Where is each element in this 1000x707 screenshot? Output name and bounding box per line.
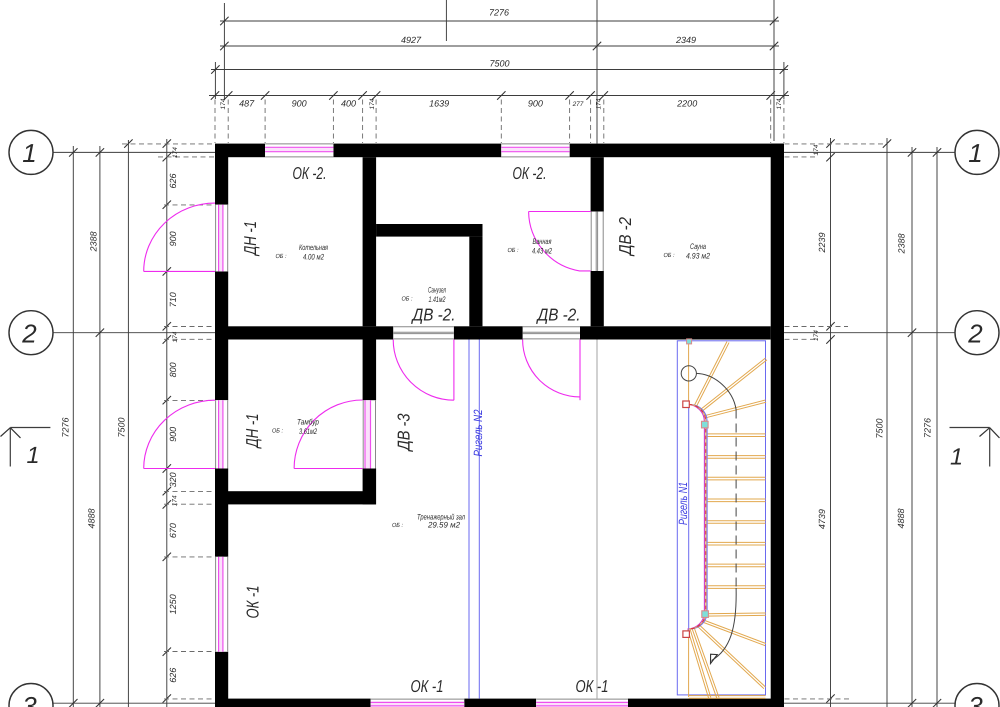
svg-text:ОК -1: ОК -1	[411, 676, 444, 696]
svg-text:ОБ :: ОБ :	[508, 247, 519, 254]
svg-text:174: 174	[172, 331, 179, 342]
svg-text:400: 400	[341, 99, 356, 109]
svg-text:174: 174	[369, 98, 376, 109]
svg-text:3.61м2: 3.61м2	[299, 427, 317, 436]
svg-text:320: 320	[168, 472, 178, 487]
svg-text:ОК -1: ОК -1	[243, 586, 263, 619]
svg-text:174: 174	[220, 98, 227, 109]
svg-text:7276: 7276	[61, 417, 71, 437]
svg-text:ОК -2.: ОК -2.	[293, 163, 327, 183]
svg-text:Тамбур: Тамбур	[297, 417, 319, 426]
svg-text:Санузел: Санузел	[428, 285, 446, 294]
svg-text:174: 174	[813, 144, 820, 155]
svg-text:3: 3	[22, 691, 37, 707]
svg-text:2: 2	[21, 318, 37, 348]
svg-text:487: 487	[239, 99, 255, 109]
svg-text:2239: 2239	[817, 232, 827, 253]
svg-text:4888: 4888	[87, 508, 97, 528]
svg-text:7276: 7276	[923, 418, 933, 438]
svg-text:1: 1	[950, 444, 963, 470]
svg-text:7276: 7276	[489, 8, 509, 18]
svg-text:Ригель N1: Ригель N1	[676, 482, 690, 525]
svg-text:174: 174	[172, 147, 179, 158]
svg-text:ОБ :: ОБ :	[664, 252, 675, 259]
svg-text:4.93 м2: 4.93 м2	[686, 251, 710, 260]
svg-text:1: 1	[968, 138, 982, 168]
svg-text:4888: 4888	[896, 508, 906, 528]
svg-text:2: 2	[967, 318, 983, 348]
svg-text:174: 174	[172, 495, 179, 506]
svg-text:ОБ :: ОБ :	[272, 427, 283, 434]
svg-text:626: 626	[168, 173, 178, 188]
svg-text:Сауна: Сауна	[690, 242, 706, 251]
svg-text:ДВ -2: ДВ -2	[615, 217, 635, 257]
svg-text:900: 900	[528, 99, 543, 109]
svg-text:ОБ :: ОБ :	[392, 522, 403, 529]
svg-text:Ригель N2: Ригель N2	[471, 409, 485, 456]
svg-text:3: 3	[968, 691, 983, 707]
svg-text:1: 1	[26, 442, 39, 468]
svg-text:4.43 м2: 4.43 м2	[532, 246, 552, 255]
svg-text:1639: 1639	[429, 99, 449, 109]
svg-text:ДВ -2.: ДВ -2.	[536, 304, 581, 324]
svg-text:4739: 4739	[817, 509, 827, 529]
svg-text:1.41м2: 1.41м2	[429, 295, 446, 304]
svg-text:ОБ :: ОБ :	[402, 295, 413, 302]
svg-text:ОК -1: ОК -1	[576, 676, 609, 696]
svg-text:626: 626	[168, 668, 178, 683]
svg-text:174: 174	[776, 98, 783, 109]
svg-text:Котельная: Котельная	[299, 243, 329, 252]
svg-text:1: 1	[22, 138, 36, 168]
svg-text:4927: 4927	[401, 35, 422, 45]
svg-text:2388: 2388	[89, 231, 99, 252]
svg-text:670: 670	[168, 523, 178, 538]
svg-text:277: 277	[572, 101, 584, 108]
svg-text:710: 710	[168, 292, 178, 307]
svg-text:7500: 7500	[117, 417, 127, 437]
svg-text:ОК -2.: ОК -2.	[513, 163, 547, 183]
svg-text:174: 174	[813, 330, 820, 341]
svg-text:900: 900	[168, 427, 178, 442]
svg-text:800: 800	[168, 362, 178, 377]
svg-text:900: 900	[168, 231, 178, 246]
svg-text:ОБ :: ОБ :	[276, 253, 287, 260]
svg-text:2200: 2200	[676, 99, 697, 109]
svg-text:ДВ -3: ДВ -3	[394, 413, 414, 452]
svg-text:1250: 1250	[168, 594, 178, 614]
svg-text:Ванная: Ванная	[533, 237, 553, 246]
svg-text:2349: 2349	[675, 35, 696, 45]
svg-text:900: 900	[292, 99, 307, 109]
svg-text:ДВ -2.: ДВ -2.	[411, 304, 456, 324]
svg-text:7500: 7500	[875, 418, 885, 438]
svg-text:ДН -1: ДН -1	[240, 221, 260, 257]
svg-text:29.59 м2: 29.59 м2	[427, 520, 461, 529]
svg-text:ДН -1: ДН -1	[242, 414, 262, 450]
svg-text:2388: 2388	[897, 233, 907, 254]
svg-text:174: 174	[596, 98, 603, 109]
svg-text:4.00 м2: 4.00 м2	[303, 253, 324, 262]
svg-text:7500: 7500	[489, 58, 509, 68]
